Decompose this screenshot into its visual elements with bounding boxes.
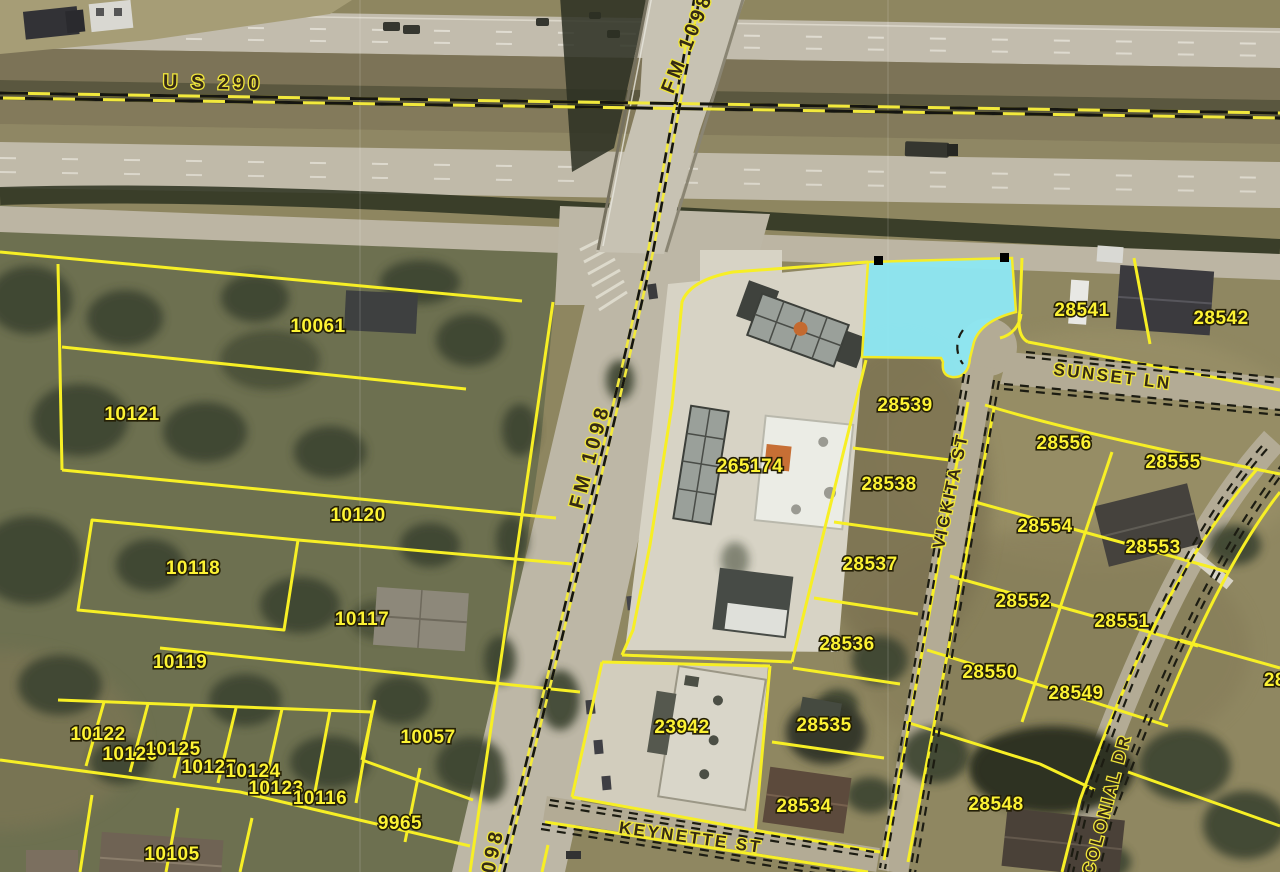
parcel-label-10122: 10122: [70, 724, 125, 745]
parcel-label-28541: 28541: [1054, 300, 1109, 321]
parcel-label-28537: 28537: [842, 554, 897, 575]
parcel-label-10121: 10121: [104, 404, 159, 425]
carwash-building: [712, 568, 793, 639]
parcel-label-28554: 28554: [1017, 516, 1072, 537]
parcel-label-28536: 28536: [819, 634, 874, 655]
map-canvas[interactable]: 1006110121101201011810117101191012210126…: [0, 0, 1280, 872]
parcel-label-28539: 28539: [877, 395, 932, 416]
parcel-label-28556: 28556: [1036, 433, 1091, 454]
aerial-map-viewport[interactable]: 1006110121101201011810117101191012210126…: [0, 0, 1280, 872]
parcel-label-28548: 28548: [968, 794, 1023, 815]
parcel-label-10105: 10105: [144, 844, 199, 865]
corner-marker: [1000, 253, 1009, 262]
parcel-label-10116: 10116: [293, 788, 347, 809]
parcel-label-28551: 28551: [1094, 611, 1149, 632]
parcel-label-265174: 265174: [717, 456, 783, 477]
parcel-label-28555: 28555: [1145, 452, 1200, 473]
parcel-label-10061: 10061: [290, 316, 345, 337]
parcel-label-23942: 23942: [654, 717, 709, 738]
street-label-u-s-290: U S 290: [163, 71, 264, 95]
parcel-label-28538: 28538: [861, 474, 916, 495]
parcel-label-28542: 28542: [1193, 308, 1248, 329]
building-10061: [344, 290, 418, 334]
parcel-label-28549: 28549: [1048, 683, 1103, 704]
parcel-label-10119: 10119: [153, 652, 207, 673]
parcel-label-28553: 28553: [1125, 537, 1180, 558]
parcel-label-28534: 28534: [776, 796, 831, 817]
parcel-label-10117: 10117: [335, 609, 389, 630]
parcel-label-2854: 2854: [1264, 670, 1280, 691]
parcel-label-28550: 28550: [962, 662, 1017, 683]
parcel-label-10118: 10118: [166, 558, 220, 579]
parcel-label-9965: 9965: [378, 813, 422, 834]
parcel-label-28535: 28535: [796, 715, 851, 736]
parcel-label-10057: 10057: [400, 727, 455, 748]
parcel-label-28552: 28552: [995, 591, 1050, 612]
parcel-label-10120: 10120: [330, 505, 385, 526]
corner-marker: [874, 256, 883, 265]
